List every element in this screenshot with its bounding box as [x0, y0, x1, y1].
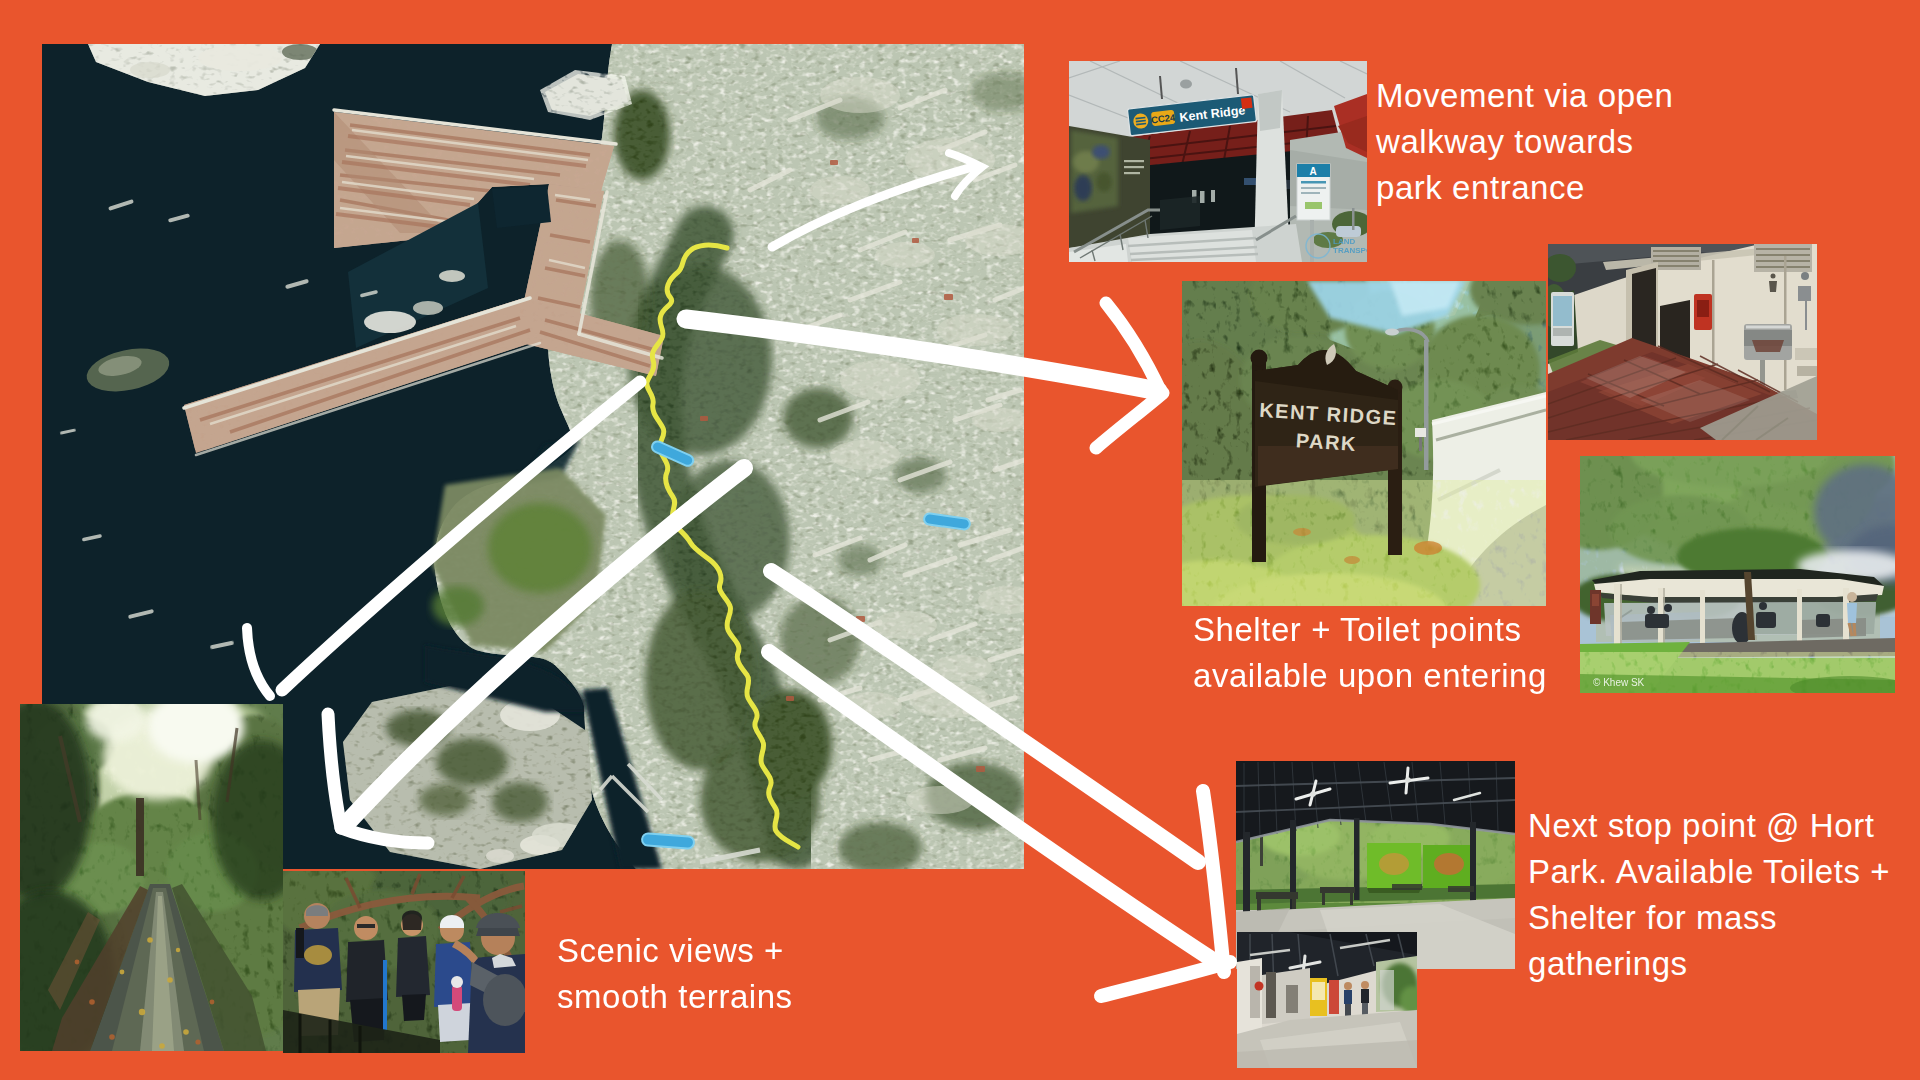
svg-text:PARK: PARK	[1295, 429, 1357, 455]
svg-text:LAND: LAND	[1333, 237, 1355, 246]
svg-text:© Khew SK: © Khew SK	[1593, 677, 1645, 688]
svg-text:A: A	[1309, 166, 1316, 177]
